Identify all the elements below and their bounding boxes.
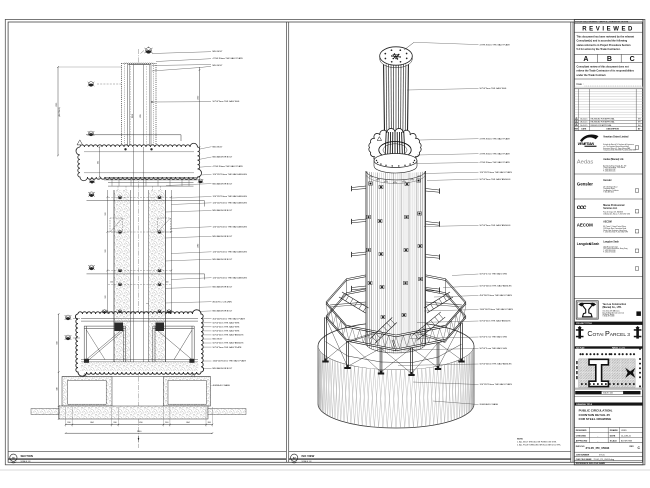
svg-text:DRAWN: DRAWN bbox=[610, 429, 618, 432]
svg-text:F +853 2833 1115: F +853 2833 1115 bbox=[603, 171, 615, 173]
svg-text:status referred to in Proj: status referred to in Project Procedure … bbox=[577, 44, 632, 47]
svg-text:Date :: Date : bbox=[577, 82, 584, 86]
svg-text:120*120*10mm THK GALV ANGLES: 120*120*10mm THK GALV ANGLES bbox=[213, 276, 248, 279]
svg-text:1: 1 bbox=[576, 125, 577, 127]
svg-text:Consultant(s) and is accord: Consultant(s) and is accorded the follow… bbox=[577, 40, 628, 43]
svg-text:China Law Building, 21/F, Maca: China Law Building, 21/F, Macau bbox=[603, 167, 625, 169]
svg-text:under the Trade Contract.: under the Trade Contract. bbox=[577, 74, 607, 77]
svg-text:DESIGNED: DESIGNED bbox=[576, 430, 587, 432]
svg-text:120*120*10mm THK GALV ANGLES: 120*120*10mm THK GALV ANGLES bbox=[213, 173, 248, 176]
svg-text:AECOM: AECOM bbox=[577, 222, 593, 227]
svg-text:T +853 2833 1113: T +853 2833 1113 bbox=[603, 169, 615, 171]
svg-text:120*120*10mm THK GALV PLATE: 120*120*10mm THK GALV PLATE bbox=[480, 171, 513, 174]
svg-text:AECOM: AECOM bbox=[603, 221, 612, 224]
svg-text:50*50*5mm THK GALV SHS: 50*50*5mm THK GALV SHS bbox=[213, 100, 240, 103]
svg-text:DESCRIPTION: DESCRIPTION bbox=[607, 129, 620, 131]
svg-text:500: 500 bbox=[105, 250, 107, 253]
svg-text:M16 ANCHOR BOLT: M16 ANCHOR BOLT bbox=[213, 209, 233, 212]
svg-text:50*50*5mm THK GALV PLATE: 50*50*5mm THK GALV PLATE bbox=[213, 346, 243, 349]
svg-text:50*50*5mm THK GALV ANGLES: 50*50*5mm THK GALV ANGLES bbox=[480, 320, 511, 323]
svg-text:Ø89: Ø89 bbox=[140, 114, 142, 117]
svg-text:Langdon Seah: Langdon Seah bbox=[603, 241, 619, 243]
svg-text:ISO VIEW: ISO VIEW bbox=[302, 454, 315, 458]
svg-text:FOR STEEL DRAWING: FOR STEEL DRAWING bbox=[579, 417, 612, 421]
svg-text:5.4 for action by the Tra: 5.4 for action by the Trade Contractor. bbox=[577, 48, 621, 51]
svg-text:120*120*10mm THK GALV ANGLES: 120*120*10mm THK GALV ANGLES bbox=[213, 202, 248, 205]
svg-text:Gensler: Gensler bbox=[603, 179, 612, 182]
svg-text:De Macau, Macau: De Macau, Macau bbox=[603, 314, 615, 316]
svg-text:REVIEWED: REVIEWED bbox=[582, 27, 635, 33]
svg-text:4 THK 90mm THK GALV PLATE: 4 THK 90mm THK GALV PLATE bbox=[480, 161, 511, 164]
svg-text:14-JUN-15: 14-JUN-15 bbox=[621, 435, 632, 437]
svg-text:4 THK 90mm THK GALV PLATE: 4 THK 90mm THK GALV PLATE bbox=[480, 152, 511, 155]
svg-text:SECTION: SECTION bbox=[21, 454, 33, 458]
svg-text:RE-ISSUED FOR APPROVAL: RE-ISSUED FOR APPROVAL bbox=[591, 121, 615, 124]
svg-text:LWKD: LWKD bbox=[621, 430, 627, 432]
svg-text:REV: REV bbox=[630, 446, 635, 448]
svg-text:Yau Lee Construction: Yau Lee Construction bbox=[603, 303, 627, 306]
svg-text:C: C bbox=[630, 56, 635, 63]
svg-text:302: 302 bbox=[97, 161, 99, 164]
svg-text:400DIA R.C BASE: 400DIA R.C BASE bbox=[213, 384, 231, 387]
svg-text:50*50*5mm THK GALV SHS: 50*50*5mm THK GALV SHS bbox=[213, 326, 240, 329]
svg-text:M16 BOLT: M16 BOLT bbox=[213, 146, 224, 148]
svg-text:50*50*5 mm THK GALV SHS: 50*50*5 mm THK GALV SHS bbox=[480, 347, 508, 350]
svg-text:Venetian Orient Limited: Venetian Orient Limited bbox=[603, 136, 629, 139]
svg-text:DWG NO: DWG NO bbox=[576, 446, 585, 448]
svg-text:2000DIA R.C BASE: 2000DIA R.C BASE bbox=[480, 403, 499, 406]
svg-text:DRAWING TITLE: DRAWING TITLE bbox=[576, 403, 592, 406]
svg-text:relieve the Trade Contractor: relieve the Trade Contractor of its resp… bbox=[577, 70, 635, 73]
svg-text:M16 ANCHOR BOLT: M16 ANCHOR BOLT bbox=[213, 235, 233, 238]
svg-text:2. ALL FILLET WELDED SHOULD BE: 2. ALL FILLET WELDED SHOULD BE 6mm THK. bbox=[517, 443, 561, 446]
svg-text:100: 100 bbox=[166, 282, 169, 284]
svg-text:SCALE: SCALE bbox=[610, 439, 618, 442]
svg-text:NOTE:: NOTE: bbox=[517, 438, 524, 440]
svg-text:T 310.449.5600: T 310.449.5600 bbox=[603, 192, 614, 194]
svg-text:ccc: ccc bbox=[577, 204, 587, 211]
svg-text:50*50*5mm THK GALV SHS: 50*50*5mm THK GALV SHS bbox=[213, 322, 240, 325]
svg-text:200: 200 bbox=[208, 422, 211, 424]
svg-text:M16 ANCHOR BOLT: M16 ANCHOR BOLT bbox=[213, 258, 233, 261]
svg-text:DATE: DATE bbox=[581, 128, 587, 131]
svg-text:Aedas: Aedas bbox=[577, 160, 594, 166]
svg-text:450: 450 bbox=[139, 422, 142, 424]
svg-text:450*200*10mm THK GALV PLATE: 450*200*10mm THK GALV PLATE bbox=[213, 317, 246, 320]
svg-text:Consultant review of this: Consultant review of this document does … bbox=[577, 65, 629, 68]
svg-text:50*50*5mm THK GALV ANGLES: 50*50*5mm THK GALV ANGLES bbox=[480, 224, 511, 227]
svg-text:M16 ANCHOR BOLT: M16 ANCHOR BOLT bbox=[213, 156, 233, 159]
svg-text:T +852 2830 3500: T +852 2830 3500 bbox=[603, 250, 615, 252]
svg-text:Services Ltd.: Services Ltd. bbox=[603, 207, 617, 210]
svg-text:450*200*10mm THK GALV PLATE: 450*200*10mm THK GALV PLATE bbox=[480, 294, 513, 297]
svg-text:T +852 3922 9000 F +852 3922: T +852 3922 9000 F +852 3922 9797 bbox=[603, 232, 628, 234]
svg-text:AS SHOWN: AS SHOWN bbox=[621, 439, 633, 442]
svg-text:2: 2 bbox=[576, 121, 577, 123]
svg-text:This document has been revi: This document has been reviewed by the r… bbox=[577, 35, 635, 38]
svg-text:Ø150: Ø150 bbox=[132, 114, 134, 118]
svg-text:M16 ANCHOR BOLT: M16 ANCHOR BOLT bbox=[213, 310, 233, 313]
svg-text:28-05-15: 28-05-15 bbox=[580, 122, 587, 124]
svg-text:50*50*5mm THK GALV SHS: 50*50*5mm THK GALV SHS bbox=[213, 330, 240, 333]
svg-text:PROJECT TITLE: PROJECT TITLE bbox=[576, 323, 592, 325]
svg-text:50*50*5mm THK GALV ANGLES: 50*50*5mm THK GALV ANGLES bbox=[213, 342, 244, 345]
svg-text:ISSUED FOR APPROVAL: ISSUED FOR APPROVAL bbox=[591, 124, 612, 127]
svg-text:Ø100 R.C COLUMN: Ø100 R.C COLUMN bbox=[213, 301, 233, 303]
svg-text:T (853) 2870 0828: T (853) 2870 0828 bbox=[603, 316, 615, 318]
svg-text:120*120*10mm THK GALV ANGLES: 120*120*10mm THK GALV ANGLES bbox=[213, 195, 248, 198]
svg-text:APPROVED: APPROVED bbox=[576, 439, 588, 442]
svg-text:(Macau) Co., LTD.: (Macau) Co., LTD. bbox=[603, 307, 623, 309]
svg-text:4 THK 90mm THK GALV PLATE: 4 THK 90mm THK GALV PLATE bbox=[213, 57, 244, 60]
svg-text:200: 200 bbox=[67, 422, 70, 424]
svg-text:50*50*50mm THK GALV ANGLES: 50*50*50mm THK GALV ANGLES bbox=[480, 285, 513, 288]
svg-text:200: 200 bbox=[113, 422, 116, 424]
svg-text:14-05-15: 14-05-15 bbox=[580, 125, 587, 127]
svg-text:A: A bbox=[583, 56, 588, 63]
svg-text:Macau Professional: Macau Professional bbox=[603, 204, 625, 207]
svg-text:VENETIAN: VENETIAN bbox=[578, 142, 595, 146]
svg-text:500: 500 bbox=[105, 296, 107, 299]
svg-text:500: 500 bbox=[105, 213, 107, 216]
svg-text:580: 580 bbox=[56, 341, 58, 344]
svg-text:16-06-15: 16-06-15 bbox=[580, 119, 587, 121]
svg-text:50*50*50mm THK GALV ANGLES: 50*50*50mm THK GALV ANGLES bbox=[480, 363, 513, 366]
svg-text:1100*100*10mm THK GALV PLATE: 1100*100*10mm THK GALV PLATE bbox=[480, 308, 514, 311]
svg-text:REFERENCE DWG FILE NAME: REFERENCE DWG FILE NAME bbox=[576, 462, 606, 465]
svg-text:M16 BOLT: M16 BOLT bbox=[213, 51, 224, 53]
svg-text:50*50*5mm THK GALV SHS: 50*50*5mm THK GALV SHS bbox=[480, 87, 507, 90]
svg-text:F +852 2576 0416: F +852 2576 0416 bbox=[603, 252, 615, 254]
svg-text:Aedas (Macau) Ltd.: Aedas (Macau) Ltd. bbox=[603, 158, 624, 161]
svg-text:100: 100 bbox=[110, 282, 113, 284]
svg-text:340: 340 bbox=[56, 387, 58, 390]
svg-text:200: 200 bbox=[165, 422, 168, 424]
svg-text:3: 3 bbox=[576, 118, 577, 120]
svg-text:CHECKED: CHECKED bbox=[576, 435, 587, 437]
svg-text:SCALE 1:8: SCALE 1:8 bbox=[302, 460, 313, 463]
svg-text:50*50*5 mm THK GALV SHS: 50*50*5 mm THK GALV SHS bbox=[480, 273, 508, 276]
svg-text:120*120*10mm THK GALV ANGLES: 120*120*10mm THK GALV ANGLES bbox=[213, 225, 248, 228]
svg-text:120*120*10mm THK GALV ANGLES: 120*120*10mm THK GALV ANGLES bbox=[213, 251, 248, 254]
svg-text:SCALE 1:8: SCALE 1:8 bbox=[21, 460, 32, 463]
svg-text:M16 BOLT: M16 BOLT bbox=[213, 65, 224, 67]
svg-text:4 THK 90mm THK GALV PLATE: 4 THK 90mm THK GALV PLATE bbox=[213, 165, 244, 168]
svg-text:50*50*5 mm THK GALV SHS: 50*50*5 mm THK GALV SHS bbox=[480, 336, 508, 339]
svg-text:RE-ISSUED FOR APPROVAL: RE-ISSUED FOR APPROVAL bbox=[591, 118, 615, 121]
svg-text:CAD FILE NAME: CAD FILE NAME bbox=[576, 458, 592, 461]
svg-text:3YL05_PD_05093: 3YL05_PD_05093 bbox=[586, 446, 610, 450]
svg-text:B: B bbox=[607, 56, 612, 63]
svg-text:Gensler: Gensler bbox=[577, 181, 593, 186]
svg-text:50*50*5mm THK GALV ANGLES: 50*50*5mm THK GALV ANGLES bbox=[480, 178, 511, 181]
svg-text:Telephone:(853) 2882 8888 Fax: Telephone:(853) 2882 8888 Fax:(853) 2882… bbox=[603, 150, 636, 152]
svg-text:M16 ANCHOR BOLT: M16 ANCHOR BOLT bbox=[213, 182, 233, 185]
svg-text:M16 ANCHOR BOLT: M16 ANCHOR BOLT bbox=[213, 367, 233, 370]
svg-text:120*120*10mm THK GALV PLATE: 120*120*10mm THK GALV PLATE bbox=[480, 383, 513, 386]
svg-text:4 THK 90mm THK GALV PLATE: 4 THK 90mm THK GALV PLATE bbox=[480, 43, 511, 46]
svg-text:4 THK 90mm THK GALV PLATE: 4 THK 90mm THK GALV PLATE bbox=[480, 137, 511, 140]
svg-text:DO NOT SCALE DRAWING. VERIFY A: DO NOT SCALE DRAWING. VERIFY ALL DIMENSI… bbox=[575, 20, 629, 23]
svg-text:50*50*5mm THK GALV ANGLES: 50*50*5mm THK GALV ANGLES bbox=[213, 334, 244, 337]
svg-text:1100*100*10mm THK GALV PLATE: 1100*100*10mm THK GALV PLATE bbox=[213, 360, 247, 363]
svg-text:1. ALL BOLT SHOULD BE FIXING O: 1. ALL BOLT SHOULD BE FIXING ON SITE. bbox=[517, 440, 557, 443]
svg-text:DATE: DATE bbox=[610, 434, 616, 437]
svg-text:M16 BOLT: M16 BOLT bbox=[213, 339, 224, 341]
svg-text:&Seah: &Seah bbox=[589, 242, 599, 246]
svg-text:M16 ANCHOR BOLT: M16 ANCHOR BOLT bbox=[213, 286, 233, 289]
